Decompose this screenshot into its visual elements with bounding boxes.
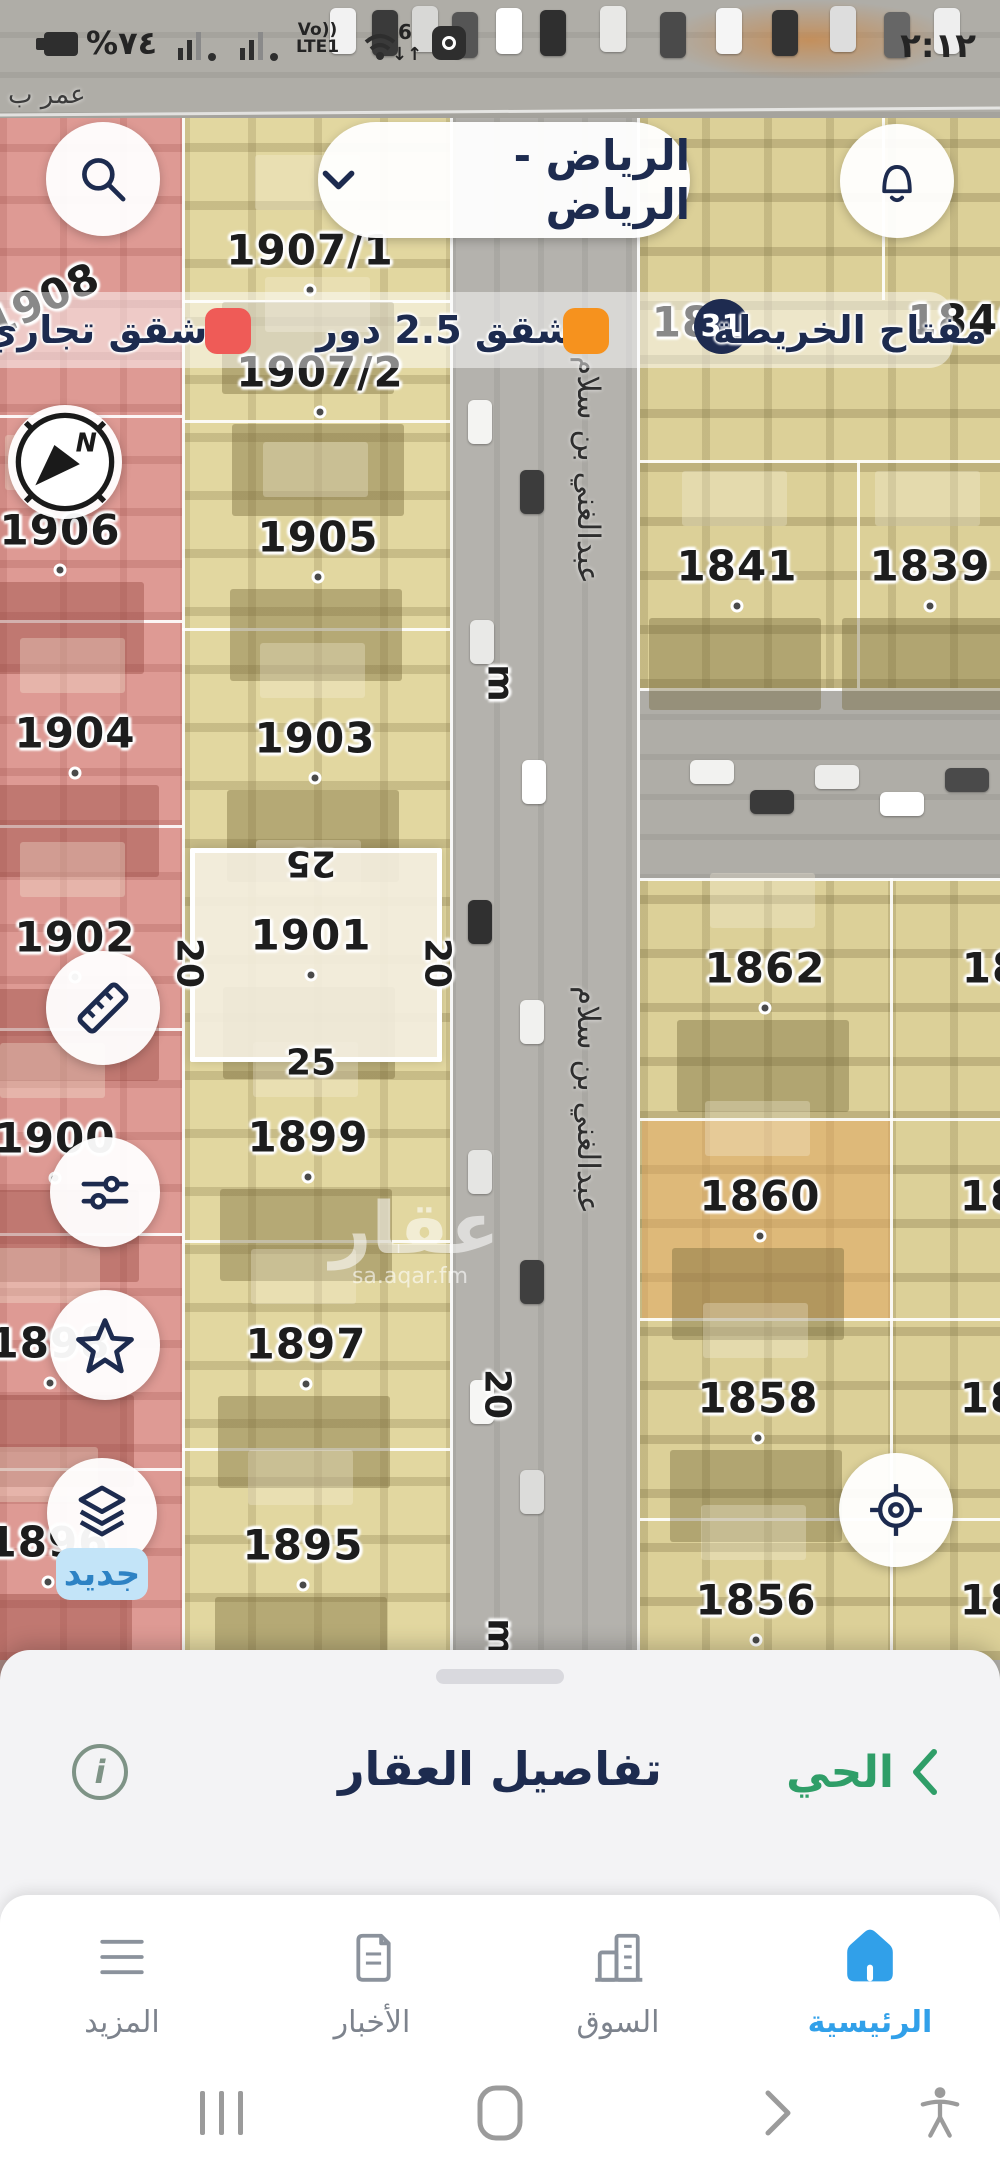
plot-dimension-label: 25 (286, 843, 336, 884)
car (945, 768, 989, 792)
favorites-button[interactable] (50, 1290, 160, 1400)
plot-label[interactable]: 1841 (677, 542, 798, 591)
app-screen: 19081906190419021900189818961907/11907/2… (0, 0, 1000, 2168)
plot-dimension-label: 20 (169, 938, 210, 988)
wifi-gen-label: 6 (398, 20, 412, 44)
building-footprint (677, 1020, 849, 1112)
building-roof (703, 1303, 808, 1358)
building-roof (248, 1450, 353, 1505)
plot-center-dot (297, 1579, 310, 1592)
plot-label[interactable]: 18 (962, 944, 1000, 993)
plot-label[interactable]: 1895 (243, 1521, 364, 1570)
building-footprint (842, 618, 1000, 710)
star-icon (71, 1311, 139, 1379)
car (520, 1470, 544, 1514)
back-button[interactable] (738, 2085, 818, 2141)
car (468, 1150, 492, 1194)
building-roof (875, 471, 980, 526)
plot-label[interactable]: 1899 (248, 1113, 369, 1162)
nav-item-market[interactable]: السوق (518, 1919, 718, 2040)
legend-label-commercial: شقق تجاري (0, 308, 207, 352)
nav-item-home[interactable]: الرئيسية (770, 1919, 970, 2040)
news-icon (334, 1919, 410, 1995)
plot-center-dot (305, 969, 318, 982)
accessibility-button[interactable] (900, 2083, 980, 2143)
locate-me-button[interactable] (839, 1453, 953, 1567)
clock: ٢:١٢ (900, 26, 976, 66)
compass-icon: N (12, 409, 118, 515)
street-name-top: عمر ب (8, 80, 86, 110)
building-roof (20, 842, 125, 897)
parcel-boundary-line (640, 460, 1000, 463)
plot-center-dot (54, 564, 67, 577)
nav-label-more: المزيد (84, 2005, 159, 2040)
android-navigation-bar (0, 2055, 1000, 2168)
plot-center-dot (731, 600, 744, 613)
street-name-vertical: عبدالغني بن سلام (570, 986, 606, 1214)
plot-center-dot (312, 571, 325, 584)
legend-swatch-orange (563, 308, 609, 354)
plot-label[interactable]: 1839 (870, 542, 991, 591)
nav-label-market: السوق (576, 2005, 659, 2040)
parcel-boundary-line (640, 1118, 1000, 1121)
legend-swatch-red (205, 308, 251, 354)
parcel-boundary-line (640, 878, 1000, 881)
plot-label[interactable]: 1856 (696, 1576, 817, 1625)
new-feature-badge: جديد (56, 1548, 148, 1600)
plot-center-dot (759, 1002, 772, 1015)
car (880, 792, 924, 816)
car (468, 400, 492, 444)
notifications-button[interactable] (840, 124, 954, 238)
car (520, 1260, 544, 1304)
sliders-icon (72, 1159, 138, 1225)
home-pill-icon (476, 2084, 524, 2142)
recent-apps-button[interactable] (182, 2085, 262, 2141)
svg-text:N: N (76, 427, 97, 457)
battery-icon (36, 32, 78, 56)
nav-label-home: الرئيسية (808, 2005, 933, 2040)
car (468, 900, 492, 944)
plot-center-dot (752, 1432, 765, 1445)
target-icon (860, 1474, 932, 1546)
nav-item-more[interactable]: المزيد (22, 1919, 222, 2040)
search-button[interactable] (46, 122, 160, 236)
car (520, 1000, 544, 1044)
neighborhood-link[interactable]: الحي (786, 1746, 942, 1798)
building-roof (251, 1249, 356, 1304)
road-width-marker: m (480, 664, 521, 702)
accessibility-icon (913, 2084, 967, 2142)
chevron-down-icon (318, 165, 359, 195)
plot-label[interactable]: 1903 (255, 714, 376, 763)
neighborhood-label: الحي (786, 1747, 894, 1798)
plot-label[interactable]: 1897 (246, 1320, 367, 1369)
ruler-icon (68, 973, 138, 1043)
building-roof (263, 442, 368, 497)
building-roof (710, 873, 815, 928)
car (520, 470, 544, 514)
map-canvas[interactable]: 19081906190419021900189818961907/11907/2… (0, 0, 1000, 1660)
menu-icon (84, 1919, 160, 1995)
street-name-vertical: عبدالغني بن سلام (570, 356, 606, 584)
plot-center-dot (42, 1576, 55, 1589)
plot-label[interactable]: 1860 (700, 1172, 821, 1221)
plot-dimension-label: 20 (417, 938, 458, 988)
map-key-button[interactable]: مفتاح الخريطة (713, 308, 987, 352)
signal-icon-sim1 (176, 28, 220, 62)
plot-label[interactable]: 1858 (698, 1374, 819, 1423)
compass-button[interactable]: N (8, 405, 122, 519)
recents-icon (194, 2087, 250, 2139)
chevron-left-icon (908, 1746, 942, 1798)
plot-center-dot (69, 767, 82, 780)
building-roof (260, 643, 365, 698)
car (470, 620, 494, 664)
parcel-boundary-line (182, 420, 450, 423)
volte-icon: Vo))LTE1 (296, 22, 339, 56)
building-roof (701, 1505, 806, 1560)
plot-center-dot (754, 1230, 767, 1243)
nav-item-news[interactable]: الأخبار (272, 1919, 472, 2040)
wifi-arrows: ↓↑ (392, 44, 422, 65)
bell-icon (865, 149, 929, 213)
plot-center-dot (44, 1377, 57, 1390)
plot-center-dot (924, 600, 937, 613)
sheet-drag-handle[interactable] (436, 1669, 564, 1684)
building-roof (20, 638, 125, 693)
plot-label[interactable]: 1905 (258, 513, 379, 562)
home-nav-button[interactable] (460, 2083, 540, 2143)
car (690, 760, 734, 784)
road-width-marker: 20 (477, 1369, 518, 1419)
filters-button[interactable] (50, 1137, 160, 1247)
status-bar: %٧٤ Vo))LTE1 6 ↓↑ ٢:١٢ (0, 18, 1000, 70)
battery-percent: %٧٤ (86, 24, 157, 62)
layers-icon (69, 1480, 135, 1546)
plot-label[interactable]: 1901 (251, 911, 372, 960)
plot-center-dot (302, 1171, 315, 1184)
market-icon (580, 1919, 656, 1995)
building-roof (682, 471, 787, 526)
plot-label[interactable]: 1904 (15, 709, 136, 758)
car (815, 765, 859, 789)
plot-label[interactable]: 18 (960, 1576, 1000, 1625)
car (750, 790, 794, 814)
plot-center-dot (750, 1634, 763, 1647)
city-selector[interactable]: الرياض - الرياض (318, 122, 690, 238)
plot-dimension-label: 25 (286, 1043, 336, 1084)
search-icon (72, 148, 134, 210)
back-chevron-icon (760, 2087, 796, 2139)
car (522, 760, 546, 804)
legend-label-apartments: شقق 2.5 دور (316, 308, 574, 352)
plot-label[interactable]: 1862 (705, 944, 826, 993)
dnd-icon (432, 26, 466, 60)
city-selector-label: الرياض - الرياض (377, 131, 690, 229)
building-roof (705, 1101, 810, 1156)
building-footprint (649, 618, 821, 710)
nav-label-news: الأخبار (334, 2005, 411, 2040)
plot-label[interactable]: 18 (960, 1172, 1000, 1221)
plot-center-dot (300, 1378, 313, 1391)
plot-label[interactable]: 18 (960, 1374, 1000, 1423)
home-icon (832, 1919, 908, 1995)
signal-icon-sim2 (238, 28, 282, 62)
plot-center-dot (309, 772, 322, 785)
plot-center-dot (314, 406, 327, 419)
measure-button[interactable] (46, 951, 160, 1065)
